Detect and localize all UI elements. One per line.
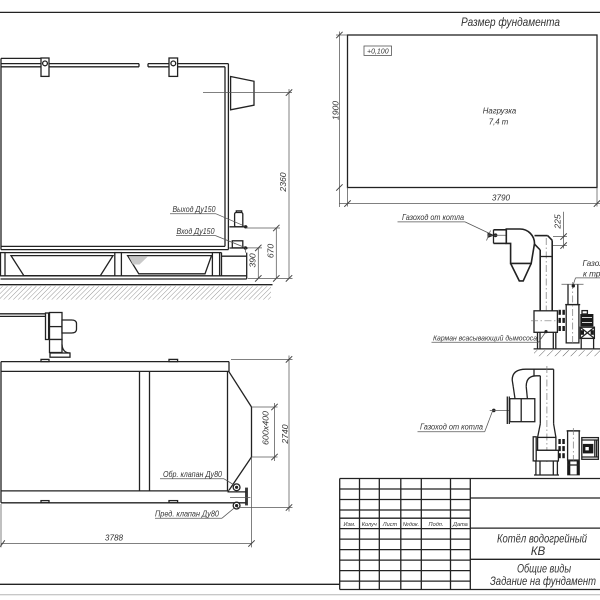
svg-text:КВ: КВ: [531, 545, 546, 558]
svg-text:Нагрузка: Нагрузка: [483, 106, 517, 115]
svg-text:Размер фундамента: Размер фундамента: [461, 15, 560, 29]
svg-text:3788: 3788: [105, 534, 124, 543]
svg-text:к трубе: к трубе: [583, 269, 600, 278]
svg-text:Изм.: Изм.: [344, 522, 356, 528]
svg-text:Карман всасывающий дымососа: Карман всасывающий дымососа: [433, 333, 537, 342]
svg-text:3790: 3790: [492, 194, 511, 203]
svg-text:Вход Ду150: Вход Ду150: [177, 227, 215, 236]
svg-text:Подп.: Подп.: [429, 522, 444, 528]
svg-text:Газоход: Газоход: [583, 259, 600, 268]
svg-text:Колуч: Колуч: [362, 522, 377, 528]
svg-text:2740: 2740: [280, 424, 290, 444]
svg-text:670: 670: [265, 244, 275, 259]
svg-text:Выход Ду150: Выход Ду150: [173, 205, 216, 214]
svg-text:Котёл водогрейный: Котёл водогрейный: [497, 533, 587, 546]
svg-text:225: 225: [553, 214, 563, 230]
svg-text:1900: 1900: [330, 101, 340, 120]
svg-text:Дата: Дата: [452, 522, 468, 528]
svg-text:390: 390: [248, 253, 258, 268]
svg-text:+0,100: +0,100: [367, 48, 389, 55]
svg-text:Задание на фундамент: Задание на фундамент: [490, 575, 596, 588]
svg-text:№док.: №док.: [403, 522, 419, 528]
svg-text:Газоход от котла: Газоход от котла: [420, 422, 483, 432]
svg-text:7,4 т: 7,4 т: [489, 117, 509, 126]
svg-text:Обр. клапан Ду80: Обр. клапан Ду80: [163, 470, 222, 479]
svg-text:Пред. клапан Ду80: Пред. клапан Ду80: [155, 509, 219, 518]
svg-text:Лист: Лист: [382, 522, 398, 528]
svg-text:Общие виды: Общие виды: [517, 562, 571, 575]
svg-text:600х400: 600х400: [260, 411, 270, 445]
svg-text:2360: 2360: [278, 172, 288, 192]
svg-text:Газоход от котла: Газоход от котла: [402, 213, 464, 222]
